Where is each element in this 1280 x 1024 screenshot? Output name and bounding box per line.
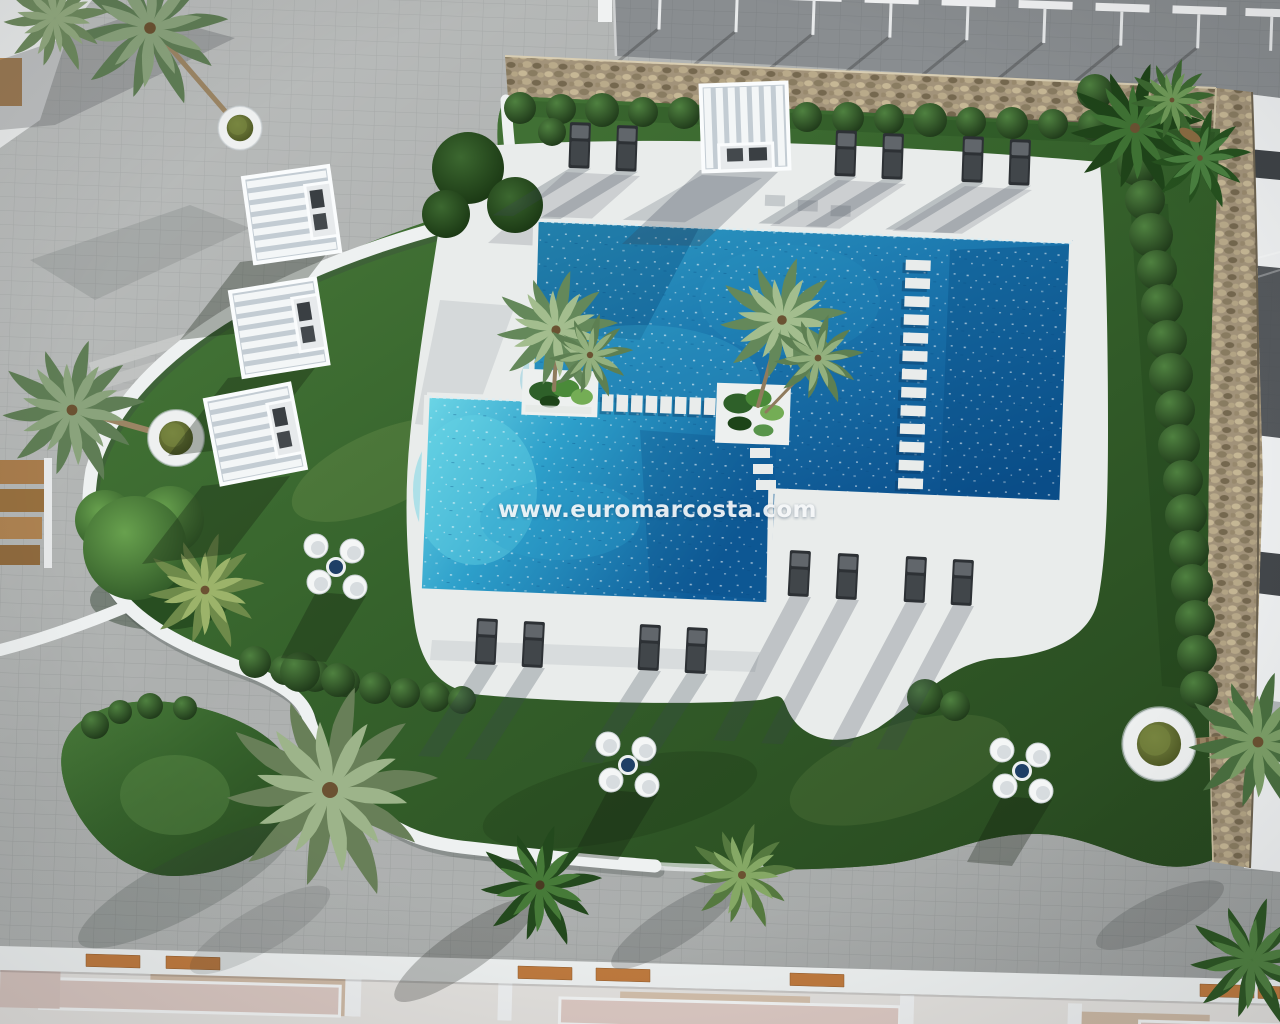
- watermark: www.euromarcosta.com: [498, 497, 788, 523]
- aerial-pool-render: www.euromarcosta.com: [0, 0, 1280, 1024]
